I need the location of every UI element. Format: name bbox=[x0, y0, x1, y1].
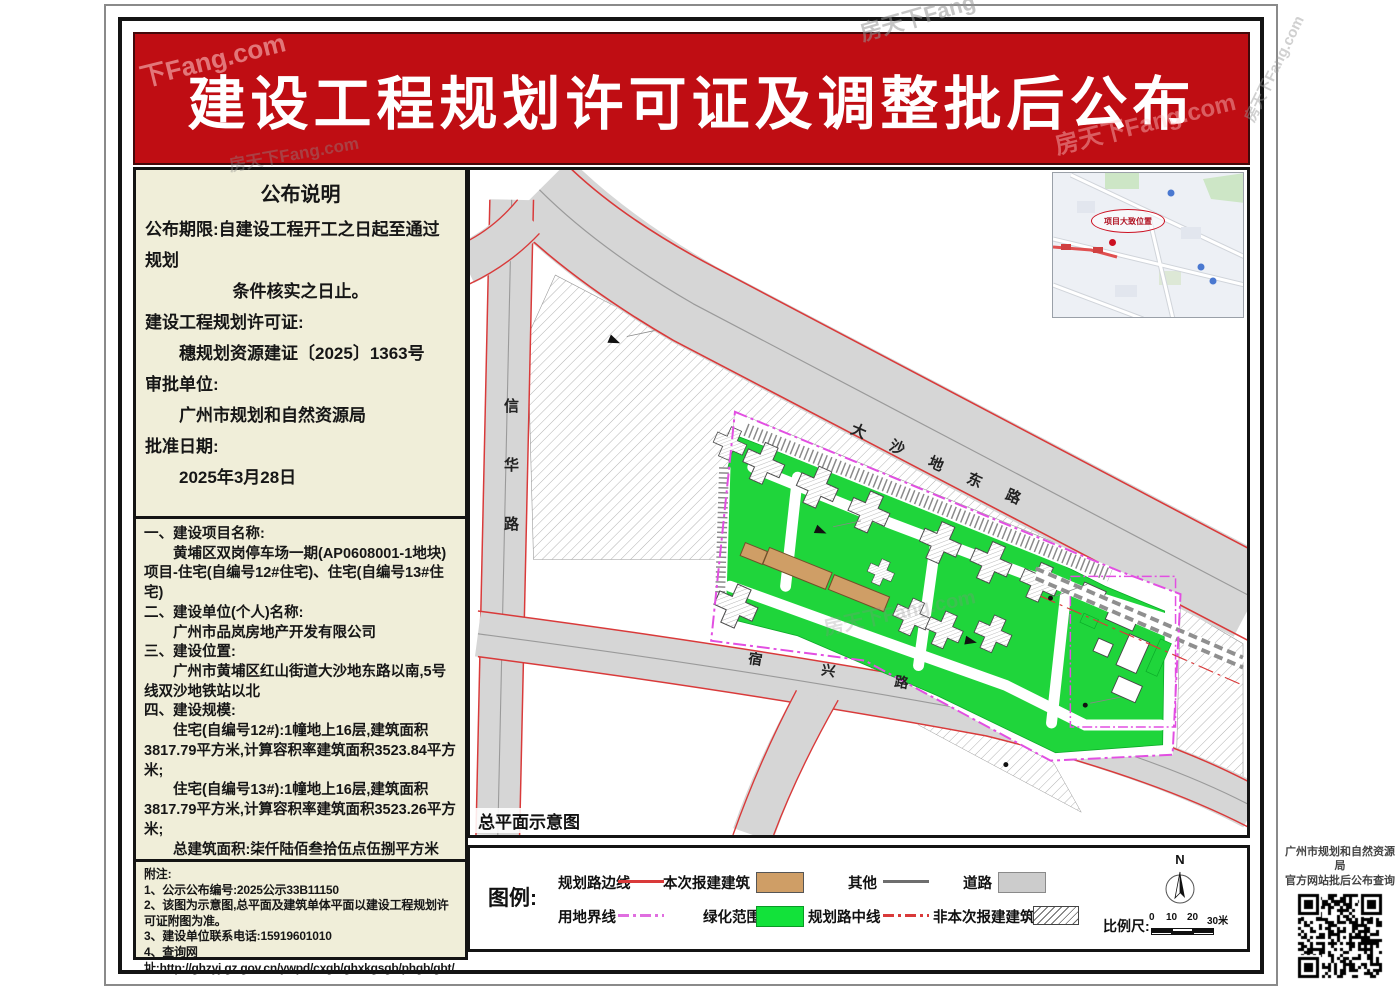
scale-tick: 0 bbox=[1149, 912, 1155, 923]
scale-tick: 20 bbox=[1187, 912, 1198, 923]
location-inset-map: 项目大致位置 bbox=[1052, 172, 1244, 318]
notice-line: 穗规划资源建证〔2025〕1363号 bbox=[145, 339, 456, 370]
road-branch-south bbox=[733, 690, 838, 835]
legend-label-green-area: 绿化范围 bbox=[703, 906, 761, 927]
north-arrow: N bbox=[1158, 852, 1202, 912]
notice-line: 条件核实之日止。 bbox=[145, 277, 456, 308]
note-line: 附注: bbox=[144, 867, 457, 883]
north-arrow-icon bbox=[1158, 867, 1202, 907]
note-line: 4、查询网址:http://ghzyj.gz.gov.cn/ywpd/cxgh/… bbox=[144, 945, 457, 976]
legend-swatch-hatch-fill bbox=[1033, 906, 1079, 925]
notice-line: 批准日期: bbox=[145, 432, 456, 463]
notice-box: 公布说明 公布期限:自建设工程开工之日起至通过规划 条件核实之日止。 建设工程规… bbox=[133, 167, 468, 519]
inset-location-callout: 项目大致位置 bbox=[1091, 209, 1165, 233]
north-label: N bbox=[1158, 852, 1202, 867]
note-line: 1、公示公布编号:2025公示33B11150 bbox=[144, 883, 457, 899]
legend-swatch-gray-line bbox=[883, 880, 929, 883]
legend-label-road: 道路 bbox=[963, 872, 992, 893]
map-caption: 总平面示意图 bbox=[473, 808, 585, 833]
legend-swatch-green-fill bbox=[756, 906, 804, 927]
detail-line: 四、建设规模: bbox=[144, 702, 457, 722]
notes-box: 附注: 1、公示公布编号:2025公示33B11150 2、该图为示意图,总平面… bbox=[133, 859, 468, 960]
detail-line: 住宅(自编号12#):1幢地上16层,建筑面积3817.79平方米,计算容积率建… bbox=[144, 722, 457, 781]
inset-map-drawing bbox=[1053, 173, 1244, 318]
detail-line: 三、建设位置: bbox=[144, 643, 457, 663]
legend-label-planned-road-center: 规划路中线 bbox=[808, 906, 881, 927]
project-details-box: 一、建设项目名称: 黄埔区双岗停车场一期(AP0608001-1地块)项目-住宅… bbox=[133, 516, 468, 862]
notice-line: 建设工程规划许可证: bbox=[145, 308, 456, 339]
notice-title: 公布说明 bbox=[145, 177, 456, 213]
detail-line: 广州市品岚房地产开发有限公司 bbox=[144, 624, 457, 644]
detail-line: 广州市黄埔区红山街道大沙地东路以南,5号线双沙地铁站以北 bbox=[144, 663, 457, 702]
inset-location-dot bbox=[1109, 239, 1116, 246]
legend-title: 图例: bbox=[488, 882, 537, 912]
note-line: 3、建设单位联系电话:15919601010 bbox=[144, 929, 457, 945]
qr-caption-line1: 广州市规划和自然资源局 bbox=[1283, 845, 1397, 874]
announcement-page: 建设工程规划许可证及调整批后公布 公布说明 公布期限:自建设工程开工之日起至通过… bbox=[0, 0, 1400, 989]
scale-tick: 30米 bbox=[1207, 912, 1228, 927]
road-xinhua bbox=[476, 200, 534, 835]
notice-line: 广州市规划和自然资源局 bbox=[145, 401, 456, 432]
legend-label-other: 其他 bbox=[848, 872, 877, 893]
qr-code-image bbox=[1296, 892, 1384, 980]
notice-line: 审批单位: bbox=[145, 370, 456, 401]
scale-bar: 0 10 20 30米 bbox=[1151, 912, 1229, 942]
legend-swatch-magenta-line bbox=[618, 914, 664, 917]
scale-tick: 10 bbox=[1166, 912, 1177, 923]
legend-label-approved-building: 本次报建建筑 bbox=[663, 872, 750, 893]
detail-line: 一、建设项目名称: bbox=[144, 525, 457, 545]
site-plan-panel: 信华路 大沙地东路 宿兴路 bbox=[467, 167, 1250, 838]
detail-line: 黄埔区双岗停车场一期(AP0608001-1地块)项目-住宅(自编号12#住宅)… bbox=[144, 545, 457, 604]
scale-label: 比例尺: bbox=[1103, 916, 1150, 936]
title-banner: 建设工程规划许可证及调整批后公布 bbox=[133, 32, 1250, 165]
legend-swatch-road-fill bbox=[998, 872, 1046, 893]
legend-label-land-boundary: 用地界线 bbox=[558, 906, 616, 927]
detail-line: 二、建设单位(个人)名称: bbox=[144, 604, 457, 624]
notice-line: 2025年3月28日 bbox=[145, 463, 456, 494]
legend-swatch-red-dashdot bbox=[883, 914, 929, 917]
qr-caption-line2: 官方网站批后公布查询 bbox=[1283, 874, 1397, 888]
qr-query-block: 广州市规划和自然资源局 官方网站批后公布查询 bbox=[1283, 845, 1397, 985]
legend-label-other-building: 非本次报建建筑 bbox=[933, 906, 1035, 927]
note-line: 2、该图为示意图,总平面及建筑单体平面以建设工程规划许可证附图为准。 bbox=[144, 898, 457, 929]
notice-line: 公布期限:自建设工程开工之日起至通过规划 bbox=[145, 215, 456, 277]
legend-box: 图例: 规划路边线 本次报建建筑 其他 道路 用地界线 绿化范围 规划路中线 非… bbox=[467, 845, 1250, 952]
legend-swatch-red-line bbox=[618, 880, 664, 883]
detail-line: 住宅(自编号13#):1幢地上16层,建筑面积3817.79平方米,计算容积率建… bbox=[144, 781, 457, 840]
page-title: 建设工程规划许可证及调整批后公布 bbox=[187, 57, 1195, 141]
legend-swatch-tan-fill bbox=[756, 872, 804, 893]
